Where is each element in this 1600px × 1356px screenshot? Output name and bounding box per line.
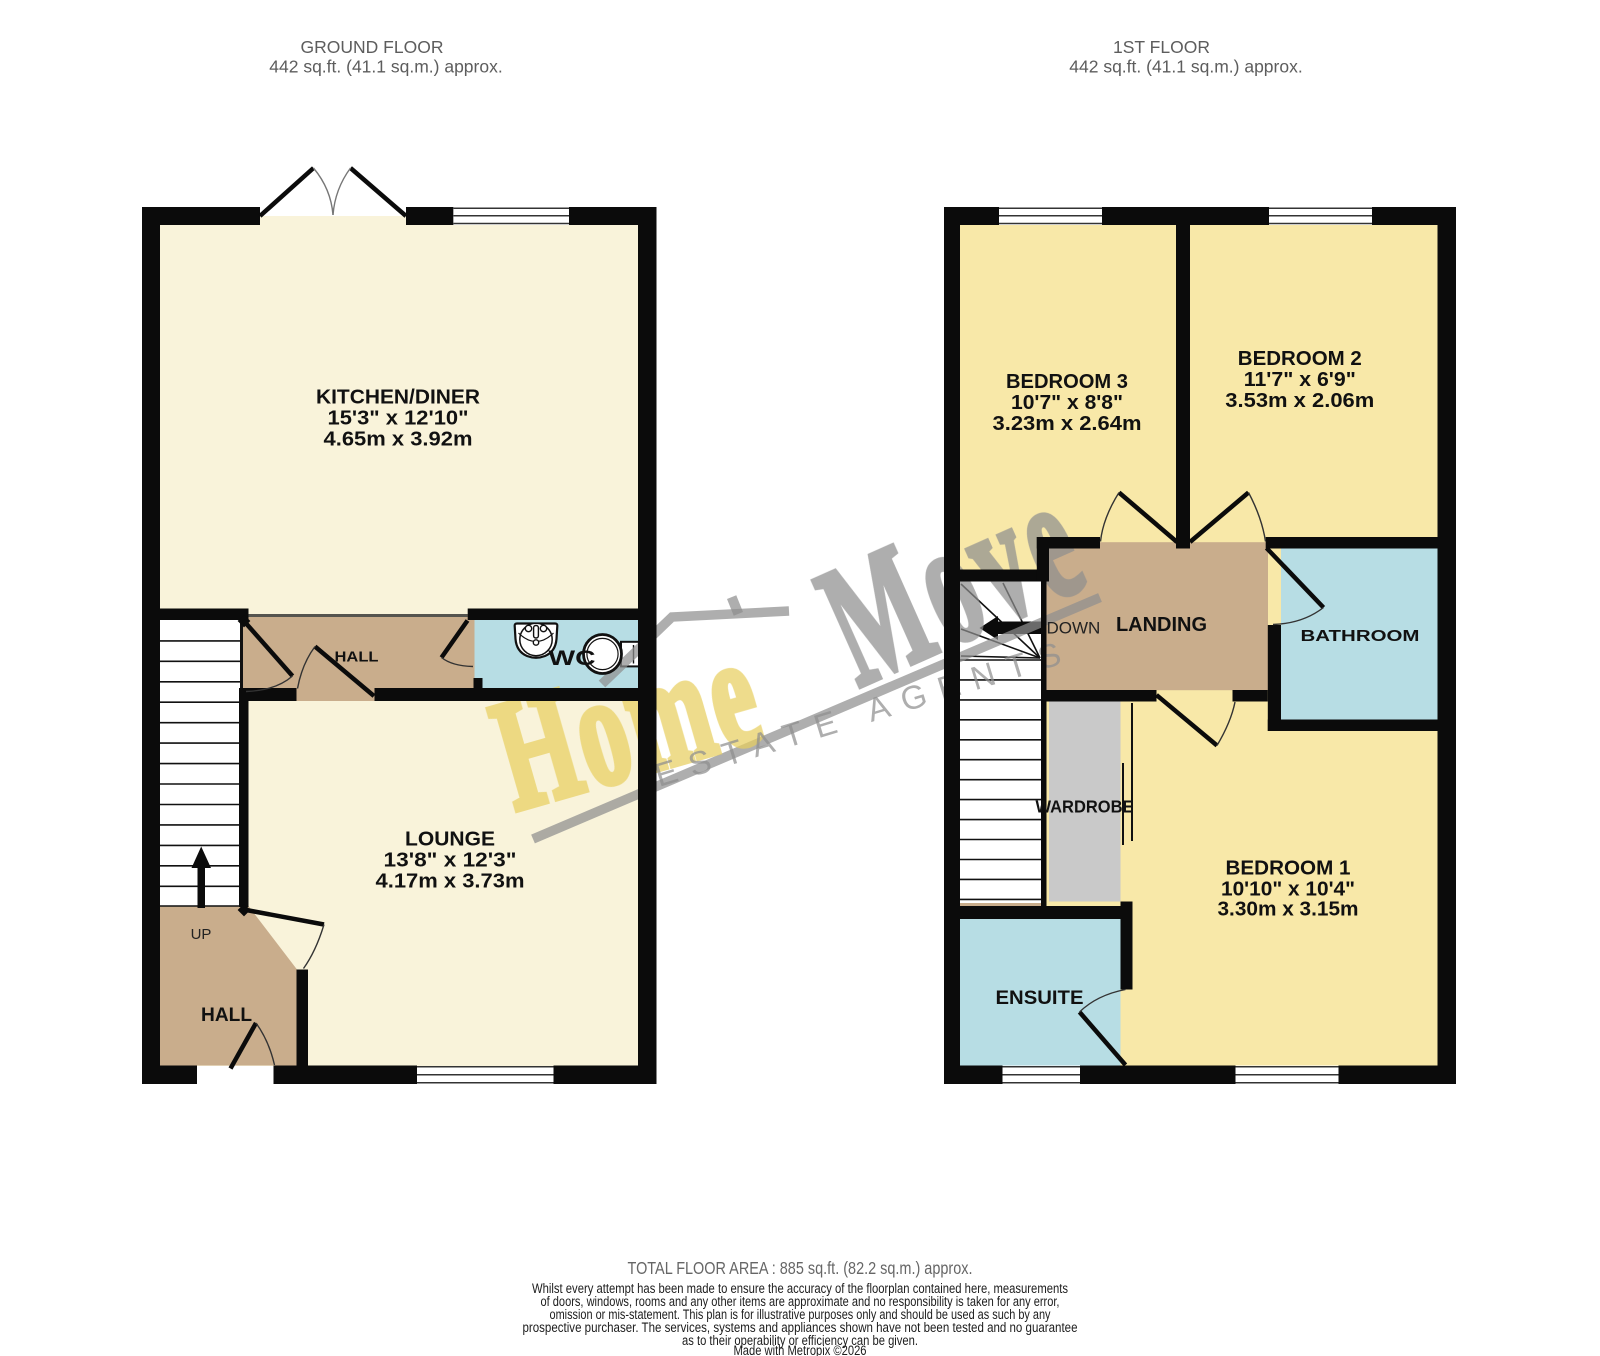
svg-text:15'3" x 12'10": 15'3" x 12'10" <box>328 408 469 430</box>
svg-text:GROUND FLOOR: GROUND FLOOR <box>301 37 444 57</box>
svg-text:BEDROOM 2: BEDROOM 2 <box>1238 348 1362 370</box>
svg-text:1ST FLOOR: 1ST FLOOR <box>1113 37 1210 57</box>
svg-text:WARDROBE: WARDROBE <box>1036 797 1134 817</box>
svg-text:BEDROOM 1: BEDROOM 1 <box>1226 858 1351 880</box>
svg-text:4.17m x 3.73m: 4.17m x 3.73m <box>376 871 525 893</box>
svg-text:10'7" x 8'8": 10'7" x 8'8" <box>1011 392 1123 414</box>
svg-text:HALL: HALL <box>335 650 379 666</box>
svg-text:DOWN: DOWN <box>1047 619 1101 638</box>
svg-text:WC: WC <box>548 646 595 670</box>
svg-text:LANDING: LANDING <box>1116 614 1207 636</box>
svg-text:442 sq.ft. (41.1 sq.m.) approx: 442 sq.ft. (41.1 sq.m.) approx. <box>1069 57 1302 77</box>
svg-text:3.23m x 2.64m: 3.23m x 2.64m <box>993 413 1142 435</box>
svg-text:13'8" x 12'3": 13'8" x 12'3" <box>384 850 517 872</box>
svg-text:Made with Metropix ©2026: Made with Metropix ©2026 <box>734 1343 867 1356</box>
svg-text:TOTAL FLOOR AREA : 885 sq.ft.: TOTAL FLOOR AREA : 885 sq.ft. (82.2 sq.m… <box>628 1258 973 1278</box>
svg-text:BEDROOM 3: BEDROOM 3 <box>1006 371 1128 393</box>
svg-text:ENSUITE: ENSUITE <box>996 988 1084 1009</box>
svg-text:4.65m x 3.92m: 4.65m x 3.92m <box>324 429 473 451</box>
svg-text:LOUNGE: LOUNGE <box>405 829 495 851</box>
svg-text:3.30m x 3.15m: 3.30m x 3.15m <box>1218 899 1359 921</box>
svg-text:UP: UP <box>191 926 212 943</box>
svg-text:HALL: HALL <box>201 1005 252 1026</box>
svg-text:11'7" x 6'9": 11'7" x 6'9" <box>1244 369 1356 391</box>
svg-text:BATHROOM: BATHROOM <box>1301 626 1420 644</box>
svg-text:3.53m x 2.06m: 3.53m x 2.06m <box>1225 390 1374 412</box>
svg-text:KITCHEN/DINER: KITCHEN/DINER <box>316 387 481 409</box>
svg-text:442 sq.ft. (41.1 sq.m.) approx: 442 sq.ft. (41.1 sq.m.) approx. <box>269 57 502 77</box>
svg-text:10'10" x 10'4": 10'10" x 10'4" <box>1221 879 1355 901</box>
